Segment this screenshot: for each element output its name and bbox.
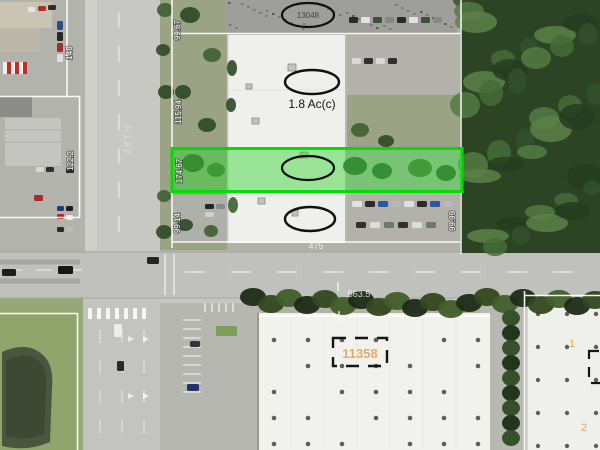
map-viewport[interactable]: 13048 1.8 Ac(c) 475 563.5 11358 1 2 99.6… <box>0 0 600 450</box>
width-label-475: 475 <box>308 241 323 251</box>
vehicle <box>58 266 73 274</box>
vehicle <box>190 341 200 347</box>
vehicle <box>409 17 418 23</box>
south-warehouse <box>258 313 490 450</box>
unit-marker-1: 1 <box>569 338 575 350</box>
vehicle <box>426 222 436 228</box>
vehicle <box>385 17 394 23</box>
dimension-nw-bottom: 122.2 <box>66 150 75 171</box>
vehicle <box>417 201 427 207</box>
vehicle <box>205 204 214 209</box>
vehicle <box>421 17 430 23</box>
vehicle <box>378 201 388 207</box>
unit-marker-2: 2 <box>581 422 587 434</box>
forest-layer <box>450 0 600 256</box>
vehicle <box>48 5 56 10</box>
dimension-left-bottom: 99.14 <box>173 212 182 233</box>
aerial-map[interactable]: 13048 1.8 Ac(c) 475 563.5 11358 1 2 99.6… <box>0 0 600 450</box>
selected-parcel-highlight[interactable] <box>172 149 462 192</box>
vehicle <box>349 17 358 23</box>
vehicle <box>28 7 35 12</box>
width-label-563: 563.5 <box>348 289 371 299</box>
vehicle <box>57 227 64 232</box>
cross-street <box>0 252 600 298</box>
vehicle <box>443 201 453 207</box>
vehicle <box>66 227 73 232</box>
dimension-left-mid: 115.94 <box>174 100 183 124</box>
area-label: 1.8 Ac(c) <box>288 97 335 111</box>
vehicle <box>361 17 370 23</box>
vehicle <box>388 58 397 64</box>
top-parcel-number: 13048 <box>297 11 320 20</box>
vehicle <box>433 17 442 23</box>
vehicle <box>376 58 385 64</box>
vehicle <box>56 168 64 173</box>
vehicle <box>397 17 406 23</box>
pond-water <box>6 355 46 438</box>
vehicle <box>187 384 199 391</box>
vehicle <box>412 222 422 228</box>
vehicle <box>364 58 373 64</box>
building <box>0 28 40 52</box>
vehicle <box>114 341 122 353</box>
vehicle <box>57 21 63 30</box>
building <box>0 97 32 117</box>
street-name-label: 28TH <box>123 124 134 154</box>
vehicle <box>398 222 408 228</box>
vehicle <box>384 222 394 228</box>
vehicle <box>352 58 361 64</box>
vehicle <box>57 206 64 211</box>
dimension-right: 99.99 <box>448 210 457 231</box>
vehicle <box>36 167 44 172</box>
vehicle <box>147 257 159 264</box>
vehicle <box>205 212 214 217</box>
vehicle <box>46 167 54 172</box>
dimension-left-top: 99.67 <box>173 19 182 40</box>
vehicle <box>57 54 63 62</box>
vehicle <box>38 6 46 11</box>
vehicle <box>430 201 440 207</box>
south-parking-lot <box>160 298 258 450</box>
vehicle <box>66 206 73 211</box>
grass-patch <box>345 95 461 148</box>
vehicle <box>2 269 16 276</box>
dimension-nw-top: 148 <box>65 46 74 60</box>
dimension-selected-parcel: 174.67 <box>175 158 184 183</box>
vehicle <box>352 201 362 207</box>
vehicle <box>216 204 225 209</box>
vehicle <box>114 324 122 337</box>
vehicle <box>391 201 401 207</box>
vehicle <box>404 201 414 207</box>
vehicle <box>57 32 63 41</box>
vehicle <box>373 17 382 23</box>
bottom-parcel-number: 11358 <box>342 346 377 361</box>
vehicle <box>34 195 43 201</box>
vehicle <box>117 361 124 371</box>
street-edge <box>85 0 97 250</box>
building <box>0 2 52 28</box>
vehicle <box>57 43 63 52</box>
vehicle <box>370 222 380 228</box>
vehicle <box>356 222 366 228</box>
vehicle <box>365 201 375 207</box>
gray-roof-building <box>225 0 458 33</box>
